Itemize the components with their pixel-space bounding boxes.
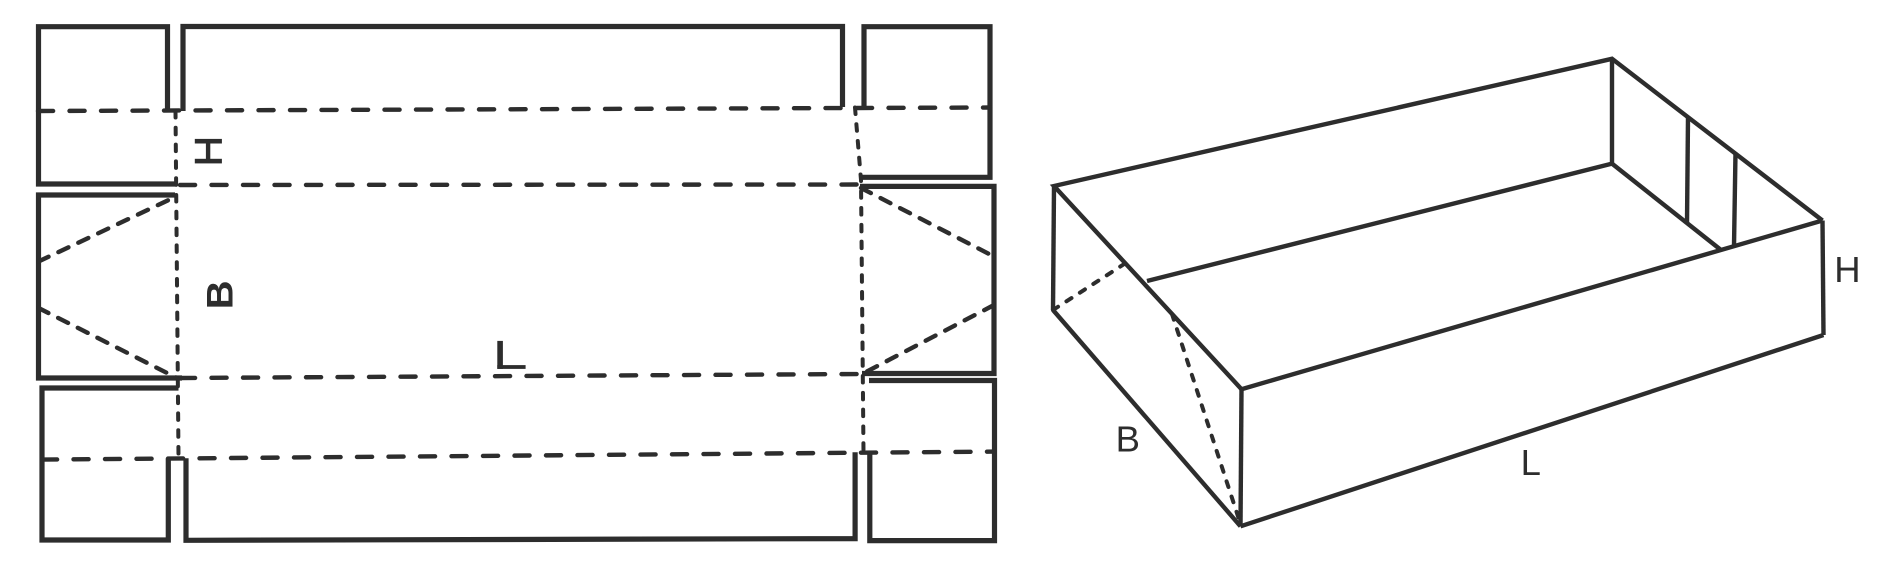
svg-text:B: B — [1116, 418, 1140, 459]
svg-text:L: L — [1521, 442, 1541, 483]
svg-text:B: B — [200, 280, 241, 309]
svg-text:H: H — [1834, 249, 1860, 290]
